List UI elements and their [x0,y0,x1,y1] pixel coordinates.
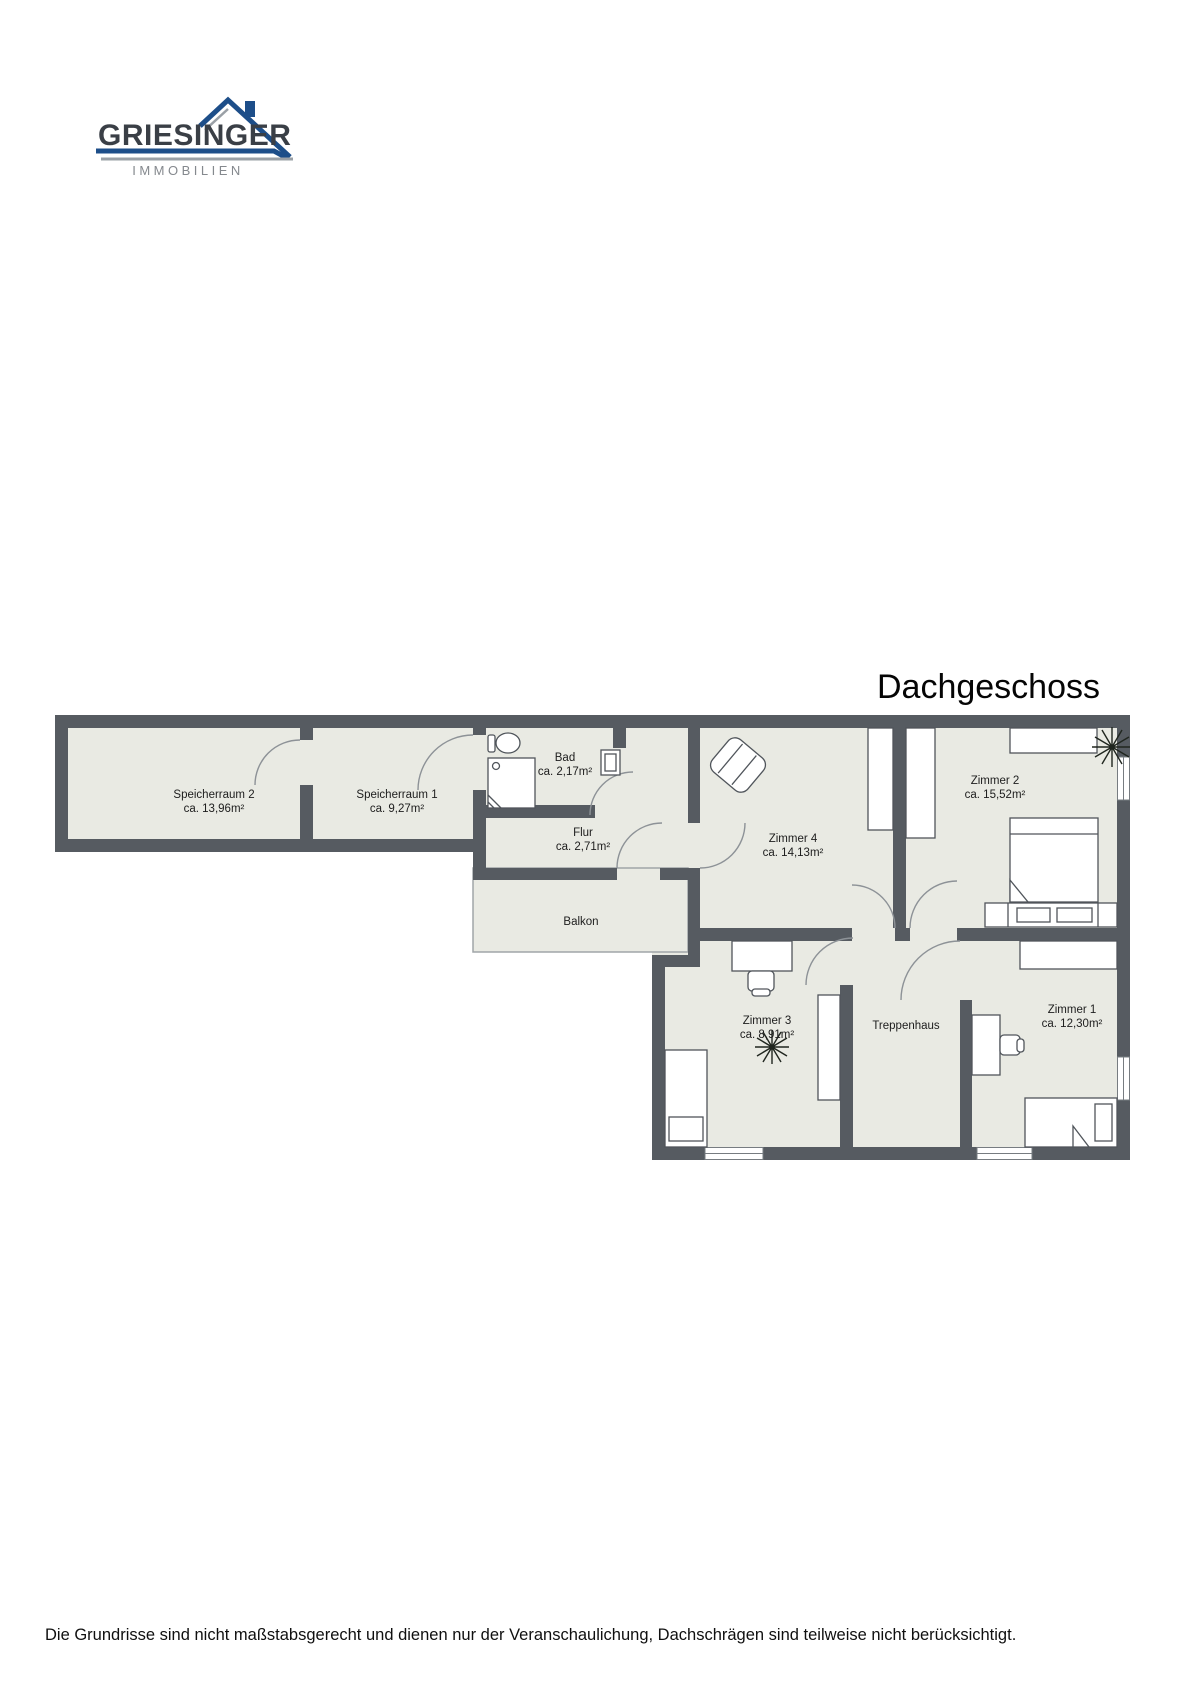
room-name: Flur [556,826,610,840]
floorplan-drawing [55,665,1130,1160]
wardrobe [818,995,840,1100]
double-bed [1010,818,1098,902]
dresser [1010,728,1097,753]
room-area: ca. 13,96m² [173,802,254,816]
wardrobe [868,728,893,830]
room-label-bad: Bad ca. 2,17m² [538,751,592,779]
room-name: Treppenhaus [872,1019,939,1033]
room-area: ca. 15,52m² [965,788,1026,802]
room-name: Balkon [563,915,598,929]
disclaimer-text: Die Grundrisse sind nicht maßstabsgerech… [45,1626,1016,1645]
chair [748,971,774,991]
toilet [488,735,495,752]
room-label-flur: Flur ca. 2,71m² [556,826,610,854]
room-label-speicherraum-2: Speicherraum 2 ca. 13,96m² [173,788,254,816]
pillow [1095,1104,1112,1141]
room-area: ca. 2,71m² [556,840,610,854]
room-name: Bad [538,751,592,765]
desk [972,1015,1000,1075]
desk [732,941,792,971]
room-name: Zimmer 4 [763,832,824,846]
pillow [669,1117,703,1141]
floorplan: Speicherraum 2 ca. 13,96m² Speicherraum … [55,665,1130,1160]
room-name: Speicherraum 1 [356,788,437,802]
room-label-zimmer-4: Zimmer 4 ca. 14,13m² [763,832,824,860]
room-label-balkon: Balkon [563,915,598,929]
room-name: Zimmer 3 [740,1014,794,1028]
wardrobe [906,728,935,838]
room-area: ca. 2,17m² [538,765,592,779]
room-name: Speicherraum 2 [173,788,254,802]
room-label-treppenhaus: Treppenhaus [872,1019,939,1033]
room-label-zimmer-3: Zimmer 3 ca. 8,91m² [740,1014,794,1042]
room-area: ca. 9,27m² [356,802,437,816]
room-name: Zimmer 2 [965,774,1026,788]
logo-tagline: IMMOBILIEN [88,163,288,178]
logo-brand: GRIESINGER [98,119,291,153]
logo: GRIESINGER IMMOBILIEN [88,85,303,185]
room-area: ca. 8,91m² [740,1028,794,1042]
balcony-outline [473,868,688,952]
room-name: Zimmer 1 [1042,1003,1103,1017]
room-area: ca. 14,13m² [763,846,824,860]
room-label-zimmer-2: Zimmer 2 ca. 15,52m² [965,774,1026,802]
wardrobe [1020,941,1117,969]
room-label-zimmer-1: Zimmer 1 ca. 12,30m² [1042,1003,1103,1031]
sideboard [985,903,1117,927]
room-label-speicherraum-1: Speicherraum 1 ca. 9,27m² [356,788,437,816]
room-area: ca. 12,30m² [1042,1017,1103,1031]
